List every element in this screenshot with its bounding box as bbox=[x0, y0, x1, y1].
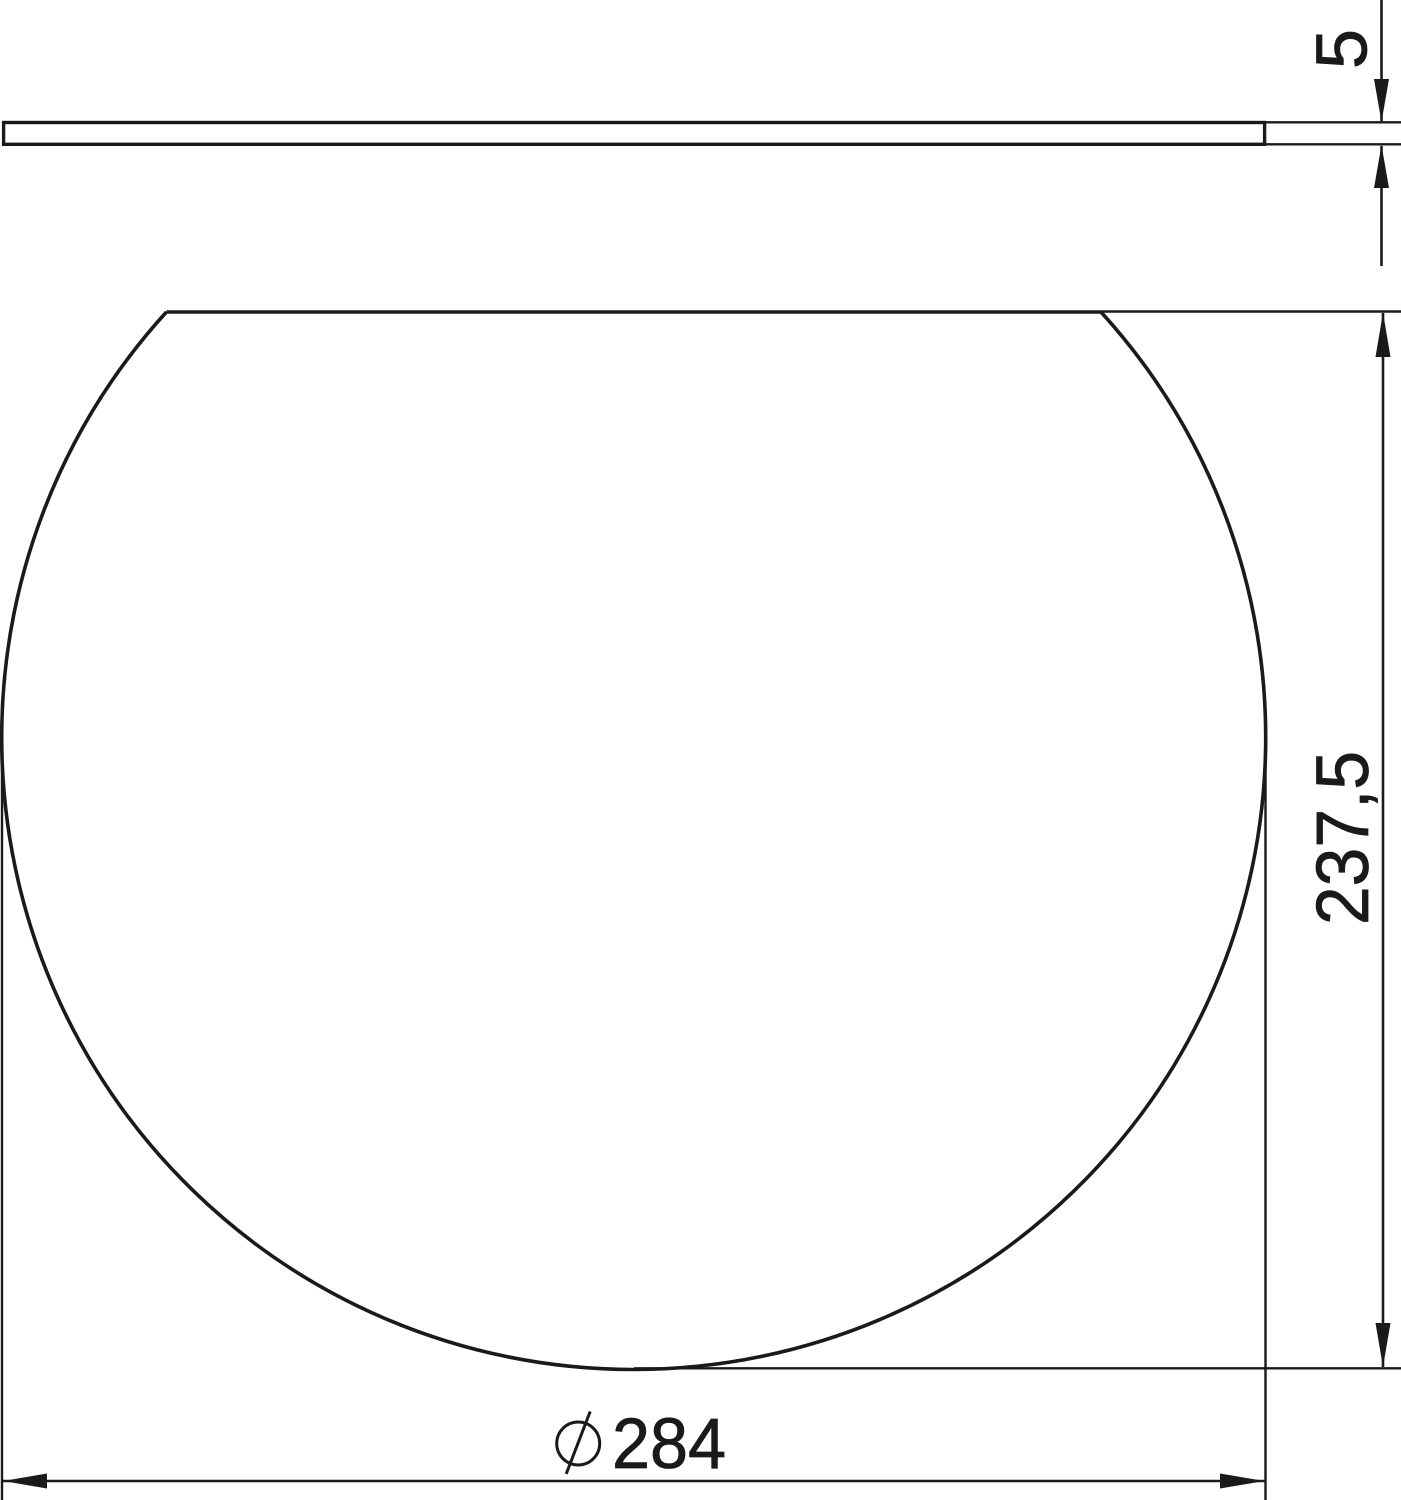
svg-text:237,5: 237,5 bbox=[1301, 751, 1384, 925]
svg-text:284: 284 bbox=[612, 1405, 726, 1484]
svg-text:5: 5 bbox=[1303, 29, 1383, 69]
